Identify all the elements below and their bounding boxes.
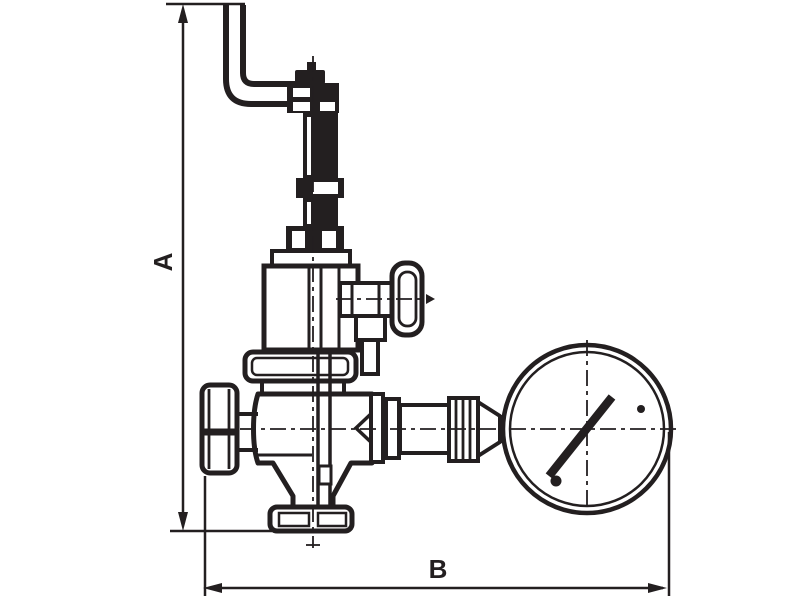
vent-pipe-inner-wall: [243, 5, 298, 84]
packing-nut-facet: [322, 231, 336, 248]
stem-highlight: [307, 202, 311, 224]
flange-window: [293, 102, 310, 111]
bonnet-flange-outer: [245, 352, 356, 381]
adjusting-screw-assembly: [286, 62, 344, 253]
screw-cap: [295, 70, 325, 84]
valve-technical-drawing: A B: [0, 0, 800, 598]
drain-flange: [270, 507, 352, 531]
arrowhead-right: [648, 583, 667, 593]
standpipe-lower: [362, 340, 378, 374]
tee-centerline-arrow: [426, 294, 435, 304]
outlet-fitting-train: [371, 394, 508, 462]
gauge-needle-hub: [551, 476, 562, 487]
packing-nut-facet: [292, 231, 305, 248]
outlet-flange-ring: [371, 394, 383, 462]
arrowhead-up: [178, 4, 188, 23]
locknut-window: [313, 182, 338, 194]
dimension-b-label: B: [429, 554, 448, 584]
arrowhead-down: [178, 512, 188, 531]
standpipe-upper: [356, 316, 385, 340]
flange-window: [320, 102, 335, 111]
drawing-canvas: A B: [0, 0, 800, 598]
flange-window: [293, 88, 310, 97]
dimension-a-label: A: [148, 252, 178, 271]
stem-highlight: [307, 117, 311, 175]
gauge-dial-dot: [637, 405, 645, 413]
drain-flange-outer: [270, 507, 352, 531]
internal-plug: [319, 466, 331, 484]
bonnet-flange: [245, 352, 356, 381]
